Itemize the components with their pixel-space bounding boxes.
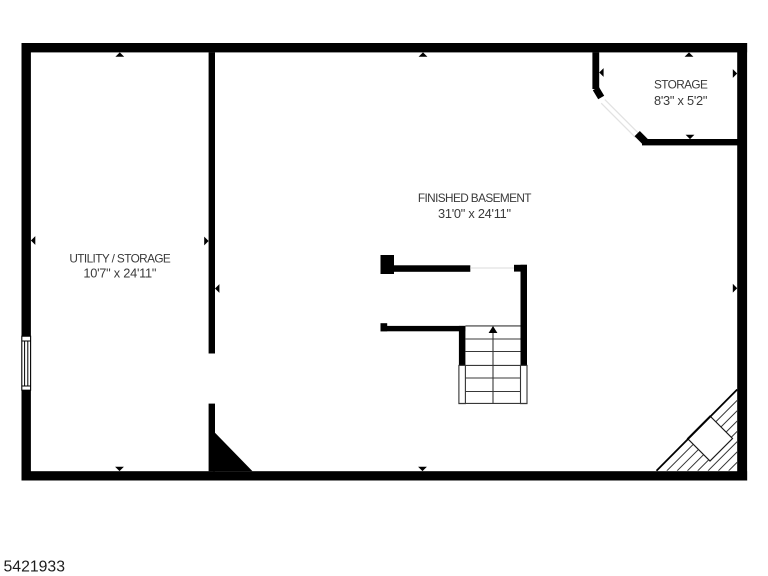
svg-text:31'0" x 24'11": 31'0" x 24'11" (438, 206, 511, 221)
svg-text:5421933: 5421933 (4, 558, 66, 575)
svg-text:FINISHED BASEMENT: FINISHED BASEMENT (418, 191, 531, 205)
svg-text:STORAGE: STORAGE (654, 78, 708, 92)
svg-text:UTILITY / STORAGE: UTILITY / STORAGE (69, 252, 171, 266)
svg-text:10'7" x 24'11": 10'7" x 24'11" (83, 266, 156, 281)
svg-text:8'3" x 5'2": 8'3" x 5'2" (654, 93, 707, 108)
